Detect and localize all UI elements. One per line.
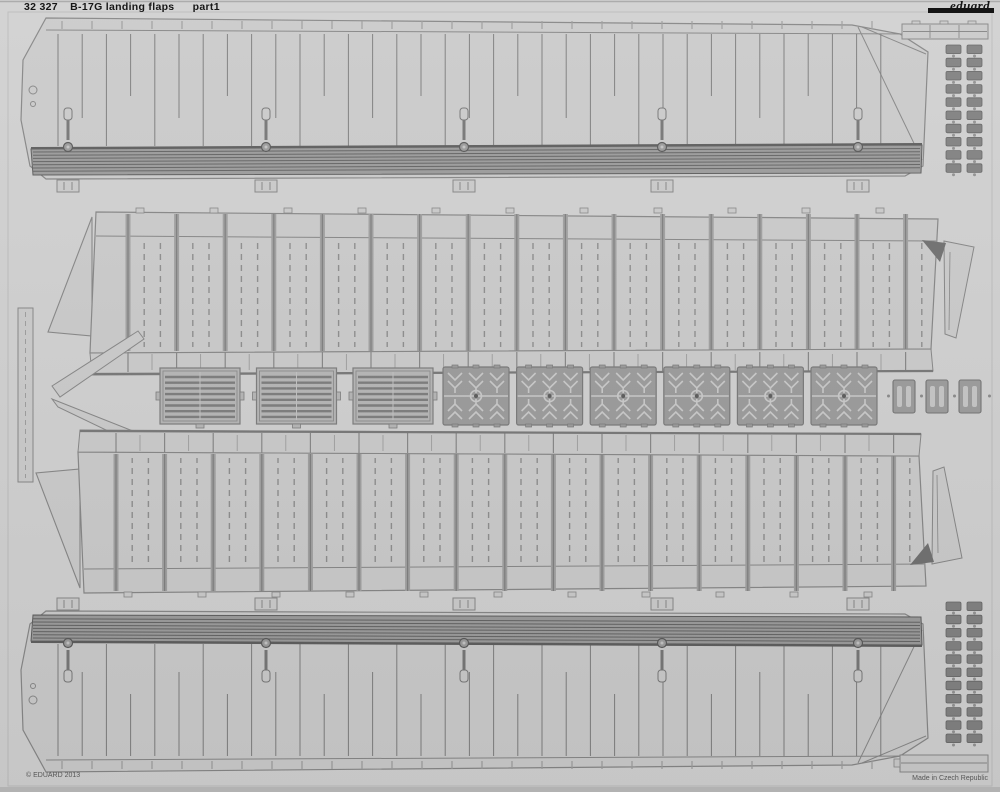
hinge-bracket <box>664 365 730 427</box>
brand-logo: eduard <box>922 0 994 16</box>
edge-tab <box>57 180 79 192</box>
flap-frame-edge-band <box>78 430 921 456</box>
grille-plate <box>253 368 341 428</box>
edge-tab <box>255 180 277 192</box>
small-plate <box>953 380 981 413</box>
mirrored-skin <box>21 598 928 772</box>
hinge-brackets <box>443 365 877 427</box>
flap-frame-part <box>36 430 962 597</box>
hinge-bracket <box>590 365 656 427</box>
hinge-bracket <box>517 365 583 427</box>
edge-tab <box>453 598 475 610</box>
rivet-strips-bottom <box>946 602 982 747</box>
small-plate <box>920 380 948 413</box>
origin-note: Made in Czech Republic <box>912 775 988 782</box>
product-title: B-17G landing flaps <box>70 1 174 13</box>
end-strip-bottom <box>894 755 988 772</box>
grille-plates <box>156 368 437 428</box>
flap-skin-part <box>21 18 928 192</box>
rivet-strip <box>946 45 961 176</box>
photoetch-fret-scan: 32 327 B-17G landing flaps part1 eduard … <box>0 0 1000 792</box>
hinge-bracket <box>737 365 803 427</box>
rivet-strip <box>967 602 982 747</box>
flap-skin-lower <box>21 598 928 772</box>
mirrored-frame <box>36 430 962 597</box>
flap-skin-upper <box>21 18 928 192</box>
header-label: 32 327 B-17G landing flaps part1 <box>24 1 220 13</box>
sheet-bottom-edge <box>0 787 1000 792</box>
edge-tab <box>57 598 79 610</box>
edge-tab <box>453 180 475 192</box>
hinge-bracket <box>443 365 509 427</box>
edge-tab <box>255 598 277 610</box>
rivet-strip <box>946 602 961 747</box>
catalog-number: 32 327 <box>24 1 58 13</box>
grille-plate <box>349 368 437 428</box>
flap-frame-part <box>48 208 974 375</box>
end-strip-top <box>902 21 988 39</box>
small-plates <box>887 380 991 413</box>
part-label: part1 <box>193 1 220 13</box>
rivet-strips-top <box>946 45 982 176</box>
brand-underline-bar <box>928 8 994 13</box>
flap-skin-corrugated-band <box>31 615 922 646</box>
flap-skin-corrugated-band <box>31 144 922 175</box>
edge-tab <box>847 180 869 192</box>
flap-skin-part <box>21 598 928 772</box>
hinge-bracket <box>811 365 877 427</box>
edge-tab <box>651 180 673 192</box>
fret-drawing <box>0 0 1000 792</box>
flap-frame-upper <box>48 208 974 375</box>
edge-tab <box>651 598 673 610</box>
small-plate <box>887 380 915 413</box>
grille-plate <box>156 368 244 428</box>
edge-tab <box>847 598 869 610</box>
flap-frame-lower <box>36 430 962 597</box>
rivet-strip <box>967 45 982 176</box>
copyright-note: © EDUARD 2013 <box>26 772 80 779</box>
spar-strip-left <box>18 308 33 482</box>
